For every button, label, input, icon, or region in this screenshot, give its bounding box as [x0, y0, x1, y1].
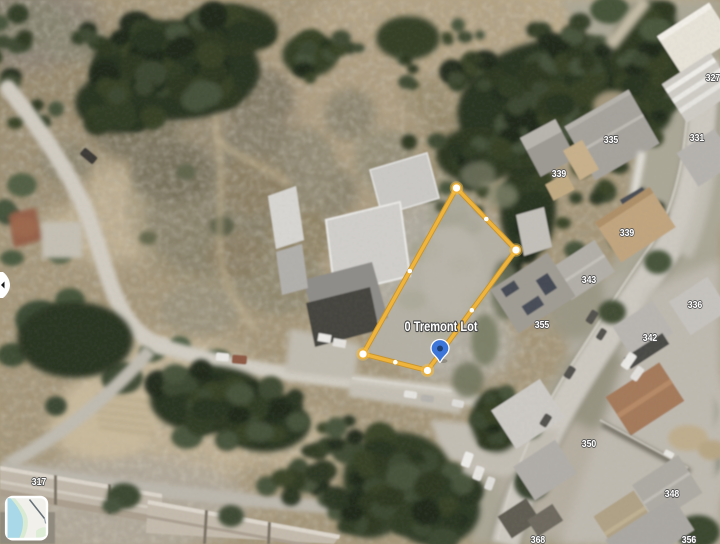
svg-text:356: 356: [682, 535, 697, 544]
svg-text:348: 348: [665, 489, 680, 500]
svg-text:327: 327: [706, 73, 720, 84]
svg-text:355: 355: [535, 320, 550, 331]
svg-text:343: 343: [582, 275, 597, 286]
svg-text:350: 350: [582, 439, 597, 450]
svg-text:342: 342: [643, 333, 658, 344]
svg-text:368: 368: [531, 535, 546, 544]
svg-text:331: 331: [690, 133, 705, 144]
svg-text:339: 339: [620, 228, 635, 239]
svg-text:317: 317: [32, 477, 47, 488]
svg-text:335: 335: [604, 135, 619, 146]
svg-text:336: 336: [688, 300, 703, 311]
svg-text:0 Tremont Lot: 0 Tremont Lot: [405, 318, 478, 334]
svg-text:339: 339: [552, 169, 567, 180]
